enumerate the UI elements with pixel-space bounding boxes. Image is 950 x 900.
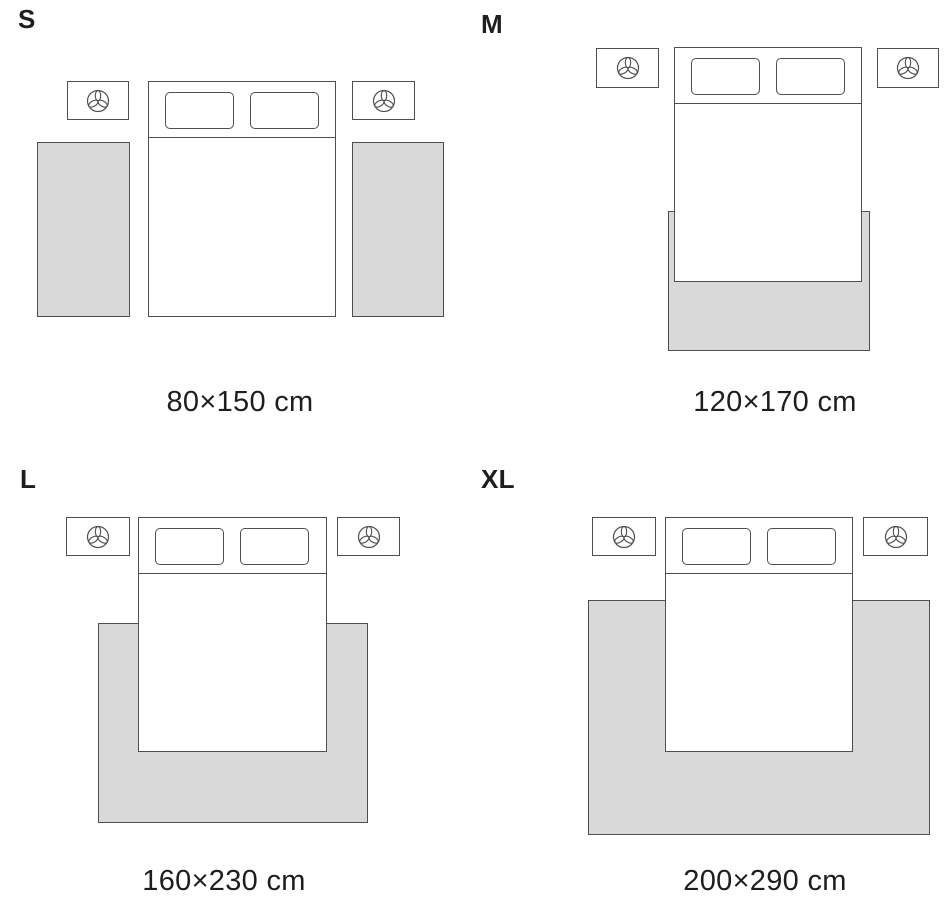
nightstand-left [67, 81, 129, 120]
dimension-label-s: 80×150 cm [167, 388, 314, 417]
plant-icon [881, 522, 911, 552]
nightstand-left [592, 517, 656, 556]
plant-icon [83, 522, 113, 552]
nightstand-right [877, 48, 939, 88]
bed [138, 517, 327, 752]
headboard-divider [675, 103, 861, 104]
dimension-label-xl: 200×290 cm [683, 867, 846, 896]
plant-icon [354, 522, 384, 552]
bed [665, 517, 853, 752]
nightstand-right [863, 517, 928, 556]
dimension-label-m: 120×170 cm [693, 388, 856, 417]
rug-runner-left [37, 142, 130, 317]
nightstand-right [352, 81, 415, 120]
headboard-divider [139, 573, 326, 574]
pillow-right [250, 92, 319, 129]
pillow-left [691, 58, 760, 95]
pillow-right [240, 528, 309, 565]
plant-icon [369, 86, 399, 116]
nightstand-right [337, 517, 400, 556]
pillow-left [682, 528, 751, 565]
size-label-s: S [18, 6, 36, 32]
pillow-right [776, 58, 845, 95]
pillow-right [767, 528, 836, 565]
size-panel-xl: XL [475, 450, 950, 900]
headboard-divider [666, 573, 852, 574]
bed [674, 47, 862, 282]
rug-runner-right [352, 142, 444, 317]
plant-icon [893, 53, 923, 83]
rug-size-guide: S [0, 0, 950, 900]
pillow-left [155, 528, 224, 565]
plant-icon [613, 53, 643, 83]
dimension-label-l: 160×230 cm [142, 867, 305, 896]
headboard-divider [149, 137, 335, 138]
plant-icon [83, 86, 113, 116]
size-panel-s: S [0, 0, 475, 450]
plant-icon [609, 522, 639, 552]
size-label-l: L [20, 466, 36, 492]
size-panel-m: M [475, 0, 950, 450]
pillow-left [165, 92, 234, 129]
nightstand-left [596, 48, 659, 88]
size-panel-l: L [0, 450, 475, 900]
size-label-xl: XL [481, 466, 515, 492]
bed [148, 81, 336, 317]
size-label-m: M [481, 11, 503, 37]
nightstand-left [66, 517, 130, 556]
